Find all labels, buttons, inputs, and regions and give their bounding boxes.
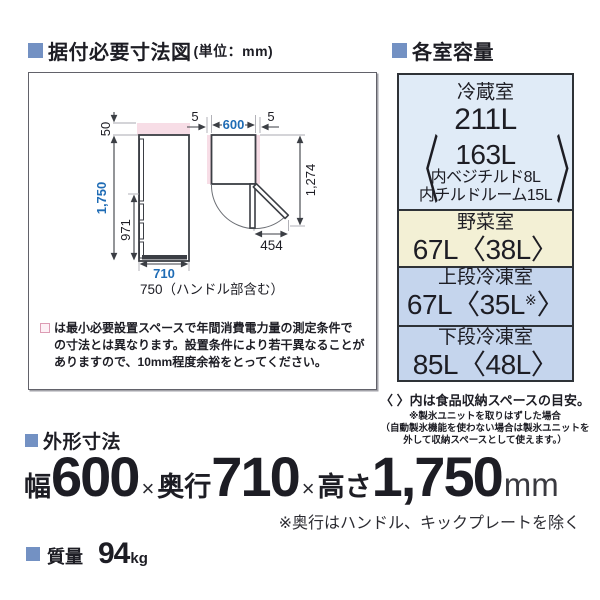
angle-bracket-open: 〈	[407, 127, 415, 217]
dim-top-clearance-label: 50	[98, 122, 113, 136]
fridge-side-view	[139, 135, 189, 261]
dim-depth-label: 710	[153, 266, 175, 281]
fridge-top-view	[212, 135, 256, 184]
blue-square-bullet-icon	[26, 547, 40, 561]
depth-label: 奥行	[157, 465, 211, 504]
mm-unit: mm	[504, 466, 559, 504]
capacity-row-lower-freezer: 下段冷凍室 85L〈48L〉	[399, 325, 572, 380]
dim-height-label: 1,750	[94, 182, 109, 215]
drawer-handle	[140, 204, 144, 220]
capacity-note-main: 〈 〉内は食品収納スペースの目安。	[378, 393, 592, 409]
room-name: 下段冷凍室	[399, 327, 572, 349]
installation-note-line: は最小必要設置スペースで年間消費電力量の測定条件で	[54, 320, 372, 337]
height-value: 1,750	[372, 447, 502, 507]
weight-value: 94	[98, 537, 129, 571]
installation-note-line: ありますので、10mm程度余裕をとってください。	[54, 354, 372, 371]
dim-depth-with-handle-label: 750（ハンドル部含む）	[140, 282, 284, 297]
door-open-90	[250, 184, 255, 228]
room-capacity: 67L〈35L※〉	[399, 289, 572, 325]
blue-square-bullet-icon	[25, 434, 38, 447]
capacity-note-sub: （自動製氷機能を使わない場合は製氷ユニットを	[378, 423, 592, 435]
door-open-angled	[253, 184, 288, 219]
external-dimensions-line: 幅 600 × 奥行 710 × 高さ 1,750 mm	[24, 447, 559, 507]
installation-diagram-box: 50 1,750 971 710 750（ハンドル部含む） 600 5	[28, 72, 377, 390]
room-capacity: 85L〈48L〉	[399, 349, 572, 380]
install-section-header: 据付必要寸法図 (単位：mm)	[28, 36, 273, 65]
blue-square-bullet-icon	[392, 43, 407, 58]
capacity-row-refrigerator: 冷蔵室 211L 〈 163L 内ベジチルド8L 内チルドルーム15L 〉	[399, 75, 572, 209]
weight-unit: kg	[130, 550, 148, 567]
installation-note-line: の寸法とは異なります。設置条件により若干異なることが	[54, 337, 372, 354]
capacity-table: 冷蔵室 211L 〈 163L 内ベジチルド8L 内チルドルーム15L 〉 野菜…	[397, 73, 574, 382]
dim-side-clearance-left-label: 5	[191, 109, 198, 124]
capacity-row-upper-freezer: 上段冷凍室 67L〈35L※〉	[399, 266, 572, 325]
weight-title: 質量	[47, 543, 83, 569]
dim-open-depth-label: 1,274	[303, 164, 318, 197]
room-capacity: 67L〈38L〉	[399, 234, 572, 265]
capacity-section-header: 各室容量	[392, 36, 494, 65]
drawer-handle	[140, 223, 144, 239]
dim-side-clearance-right-label: 5	[267, 109, 274, 124]
external-dims-note: ※奥行はハンドル、キックプレートを除く	[279, 509, 580, 533]
refrigerator-sub-capacities: 〈 163L 内ベジチルド8L 内チルドルーム15L 〉	[399, 137, 572, 207]
multiply-sign: ×	[302, 476, 315, 502]
angle-bracket-close: 〉	[555, 127, 563, 217]
dim-width-label: 600	[223, 117, 245, 132]
door-handle	[140, 139, 144, 201]
install-unit-label: (単位：mm)	[194, 41, 274, 61]
dim-door-open-label: 454	[260, 238, 283, 253]
kickplate	[142, 255, 187, 260]
pink-square-legend-icon	[40, 323, 50, 333]
width-value: 600	[51, 447, 138, 507]
capacity-note-sub: ※製氷ユニットを取りはずした場合	[378, 411, 592, 423]
room-name: 上段冷凍室	[399, 267, 572, 289]
dim-handle-height-label: 971	[118, 219, 133, 241]
width-label: 幅	[24, 465, 51, 504]
room-capacity-close: 〉	[537, 289, 565, 320]
room-name: 冷蔵室	[399, 82, 572, 104]
top-clearance-zone	[137, 123, 190, 135]
blue-square-bullet-icon	[28, 43, 43, 58]
install-section-title: 据付必要寸法図	[48, 36, 192, 65]
capacity-notes: 〈 〉内は食品収納スペースの目安。 ※製氷ユニットを取りはずした場合 （自動製氷…	[378, 393, 592, 447]
room-capacity-main: 67L〈35L	[407, 289, 525, 320]
installation-dimensions-diagram: 50 1,750 971 710 750（ハンドル部含む） 600 5	[29, 73, 378, 317]
multiply-sign: ×	[141, 476, 154, 502]
height-label: 高さ	[318, 465, 372, 504]
asterisk-mark: ※	[525, 292, 537, 308]
room-name: 野菜室	[399, 212, 572, 234]
capacity-section-title: 各室容量	[412, 36, 494, 65]
weight-line: 質量 94 kg	[26, 537, 148, 571]
installation-note: は最小必要設置スペースで年間消費電力量の測定条件で の寸法とは異なります。設置条…	[40, 320, 372, 371]
depth-value: 710	[211, 447, 298, 507]
capacity-row-vegetable: 野菜室 67L〈38L〉	[399, 209, 572, 266]
